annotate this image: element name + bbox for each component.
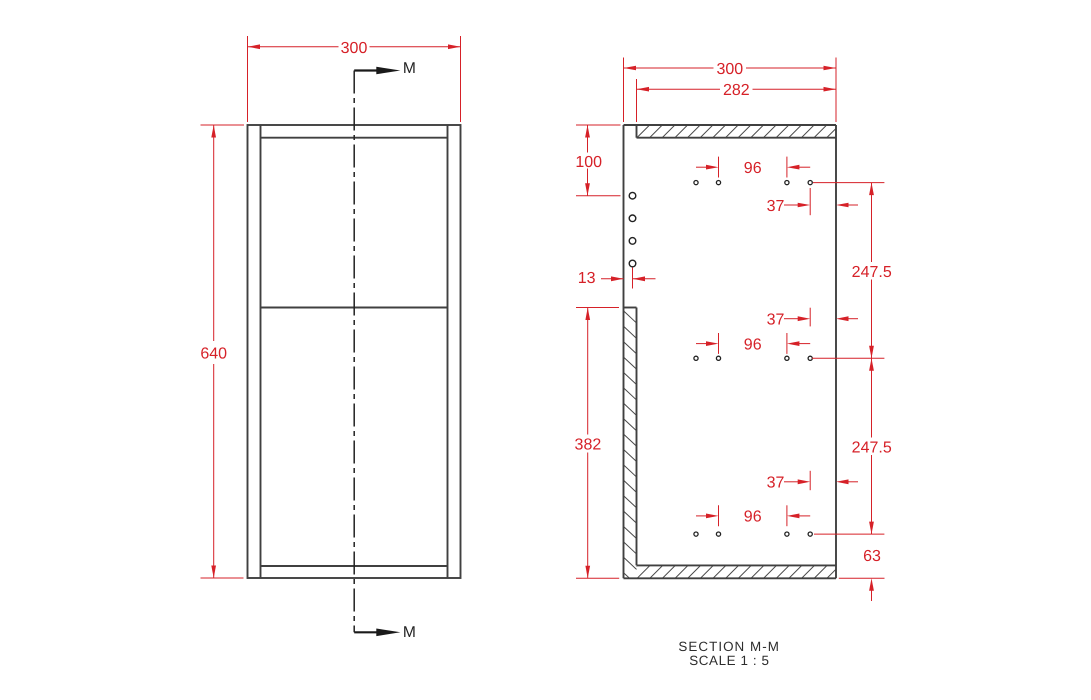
svg-text:M: M <box>403 60 416 77</box>
svg-text:37: 37 <box>767 475 785 492</box>
svg-text:13: 13 <box>578 270 596 287</box>
svg-text:SCALE 1 : 5: SCALE 1 : 5 <box>689 653 769 668</box>
svg-text:37: 37 <box>767 312 785 329</box>
svg-text:382: 382 <box>575 437 602 454</box>
svg-text:96: 96 <box>744 160 762 177</box>
svg-text:282: 282 <box>723 82 750 99</box>
svg-text:640: 640 <box>200 345 227 362</box>
svg-text:247.5: 247.5 <box>852 440 892 457</box>
svg-text:300: 300 <box>341 40 368 57</box>
svg-text:M: M <box>403 624 416 641</box>
svg-text:100: 100 <box>575 154 602 171</box>
svg-text:SECTION M-M: SECTION M-M <box>678 639 780 654</box>
svg-text:63: 63 <box>863 548 881 565</box>
svg-text:247.5: 247.5 <box>852 264 892 281</box>
svg-text:37: 37 <box>767 198 785 215</box>
svg-text:96: 96 <box>744 509 762 526</box>
svg-text:300: 300 <box>716 61 743 78</box>
svg-text:96: 96 <box>744 336 762 353</box>
